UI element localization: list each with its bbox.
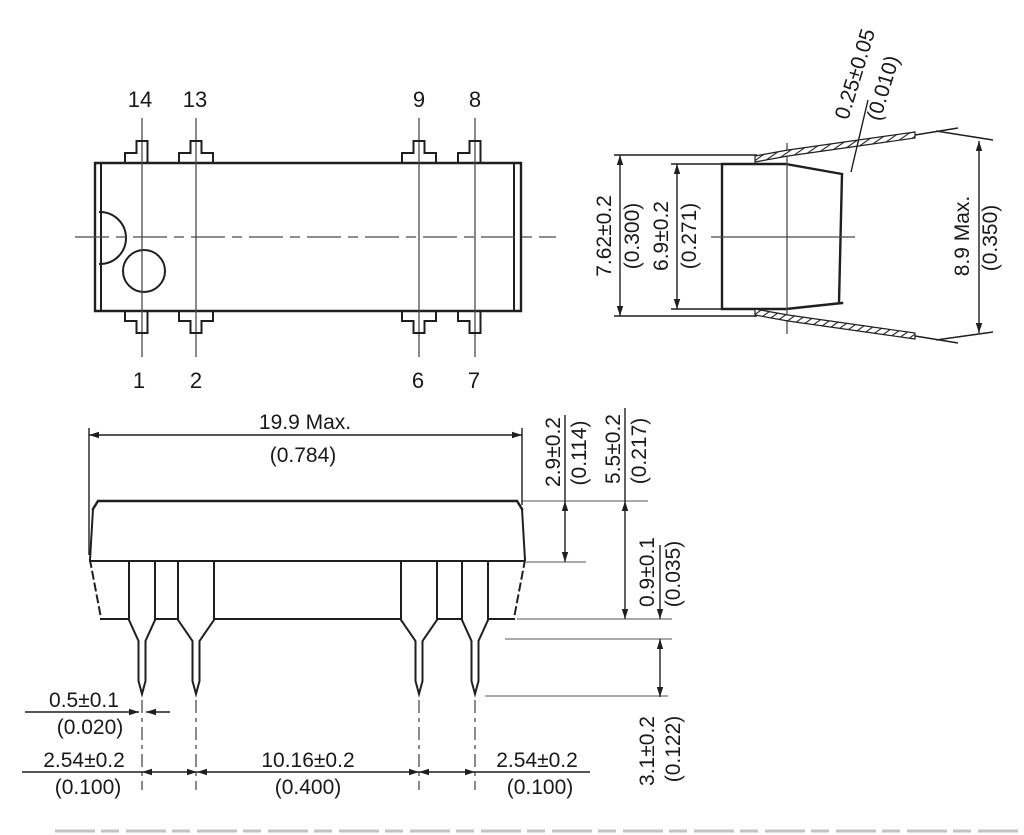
arrowhead <box>976 323 982 333</box>
end-view: 7.62±0.2 (0.300) 6.9±0.2 (0.271) 8.9 Max… <box>593 26 1002 343</box>
dim-pitch-right-mm: 2.54±0.2 <box>496 749 578 772</box>
dim-pitch-left-mm: 2.54±0.2 <box>43 749 125 772</box>
dim-body-height-inch: (0.217) <box>628 418 651 485</box>
arrowhead <box>465 769 475 775</box>
dim-overall-width-inch: (0.350) <box>979 205 1002 272</box>
dim-upper-body-height-inch: (0.114) <box>568 421 591 486</box>
relay-package-dimension-drawing: 14 13 9 8 1 2 6 7 7.62±0.2 (0.300) 6.9±0… <box>0 0 1024 835</box>
dim-body-length-inch: (0.784) <box>270 444 337 467</box>
extension-line <box>936 131 993 140</box>
pin-label-6: 6 <box>412 368 424 393</box>
arrowhead <box>512 432 522 438</box>
arrowhead <box>976 141 982 151</box>
arrowhead <box>674 164 680 174</box>
dim-center-span-mm: 10.16±0.2 <box>261 749 354 772</box>
dim-body-height-mm: 5.5±0.2 <box>602 414 625 484</box>
extension-line <box>936 332 993 340</box>
arrowhead <box>617 306 623 316</box>
body-left-edge <box>90 509 93 560</box>
pin6-blade <box>401 561 437 694</box>
pin7-blade <box>462 561 488 694</box>
arrowhead <box>562 501 568 511</box>
upper-pin-section <box>755 132 915 162</box>
dim-pin-width-inch: (0.020) <box>57 716 124 739</box>
dim-pin-width-mm: 0.5±0.1 <box>49 689 119 712</box>
pin14-tab <box>125 141 148 163</box>
pin-label-8: 8 <box>469 87 481 112</box>
dim-standoff-inch: (0.035) <box>662 541 685 608</box>
arrowhead <box>419 769 429 775</box>
dim-row-spacing-inch: (0.300) <box>621 203 644 270</box>
dim-upper-body-height-mm: 2.9±0.2 <box>542 417 565 487</box>
body-right-edge <box>522 509 525 560</box>
pin1-end-notch <box>100 212 126 264</box>
arrowhead <box>146 709 156 715</box>
dim-body-width-mm: 6.9±0.2 <box>650 201 673 271</box>
pin-label-2: 2 <box>190 368 202 393</box>
arrowhead <box>674 299 680 309</box>
arrowhead <box>142 769 152 775</box>
dim-pin-tip-mm: 3.1±0.2 <box>636 716 659 786</box>
pin-label-7: 7 <box>468 368 480 393</box>
arrowhead <box>129 709 139 715</box>
pin-label-9: 9 <box>413 87 425 112</box>
pin2-blade <box>178 561 214 694</box>
dim-body-length-mm: 19.9 Max. <box>259 411 351 434</box>
pin1-blade <box>129 561 155 694</box>
arrowhead <box>409 769 419 775</box>
pin7-tab <box>458 311 481 333</box>
dim-pitch-left-inch: (0.100) <box>55 776 122 799</box>
body-right-edge-hidden <box>514 560 525 618</box>
top-view: 14 13 9 8 1 2 6 7 <box>75 87 556 393</box>
body-left-edge-hidden <box>90 560 101 618</box>
arrowhead <box>622 501 628 511</box>
dim-center-span-inch: (0.400) <box>275 776 342 799</box>
arrowhead <box>617 155 623 165</box>
pin1-tab <box>125 311 148 333</box>
arrowhead <box>657 609 663 619</box>
pin-label-13: 13 <box>183 87 207 112</box>
arrowhead <box>89 432 99 438</box>
dim-body-width-inch: (0.271) <box>678 203 701 270</box>
dim-overall-width-mm: 8.9 Max. <box>951 196 974 277</box>
pin1-indicator-circle <box>123 250 165 292</box>
pin8-tab <box>458 141 481 163</box>
arrowhead <box>562 552 568 562</box>
arrowhead <box>197 769 207 775</box>
dim-row-spacing-mm: 7.62±0.2 <box>593 195 616 277</box>
pin-label-1: 1 <box>133 368 145 393</box>
body-top-edge <box>93 501 522 509</box>
arrowhead <box>622 609 628 619</box>
dimension-drawing-sheet: 14 13 9 8 1 2 6 7 7.62±0.2 (0.300) 6.9±0… <box>0 0 1024 835</box>
front-view: 19.9 Max. (0.784) 2.9±0.2 (0.114) 5.5±0.… <box>22 408 685 799</box>
dim-standoff-mm: 0.9±0.1 <box>636 537 659 607</box>
dim-pitch-right-inch: (0.100) <box>507 776 574 799</box>
pin-label-14: 14 <box>128 87 152 112</box>
dim-pin-tip-inch: (0.122) <box>662 716 685 783</box>
lower-pin-section <box>755 309 915 339</box>
arrowhead <box>657 639 663 649</box>
